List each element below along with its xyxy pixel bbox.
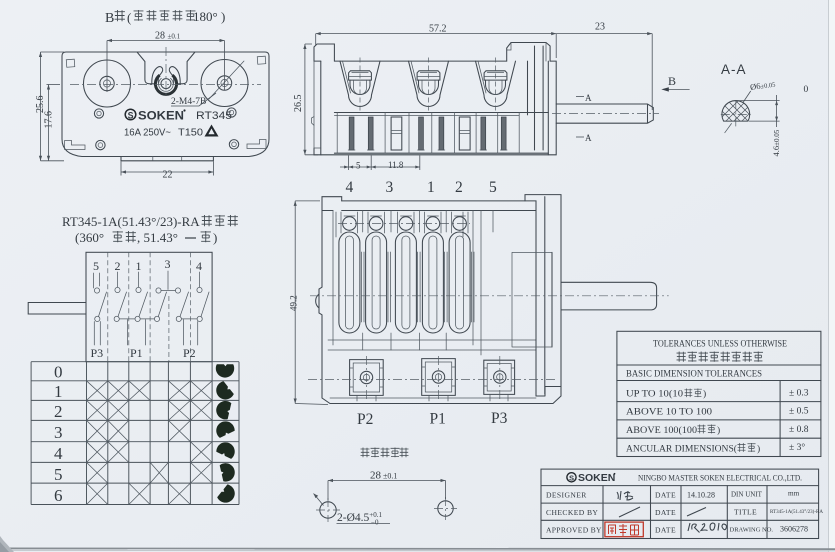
svg-text:P2: P2 [183, 346, 196, 360]
svg-text:3: 3 [54, 423, 63, 442]
svg-text:180° ): 180° ) [193, 9, 225, 24]
svg-text:, 51.43°: , 51.43° [137, 230, 178, 245]
svg-text:): ) [757, 444, 760, 455]
svg-text:± 0.8: ± 0.8 [789, 425, 809, 435]
svg-text:3606278: 3606278 [780, 525, 808, 534]
svg-text:SOKEN: SOKEN [578, 472, 615, 484]
svg-text:57.2: 57.2 [429, 24, 447, 35]
svg-text:A: A [585, 133, 592, 143]
svg-text:23: 23 [595, 22, 605, 33]
svg-text:−0: −0 [371, 519, 379, 527]
svg-text:4: 4 [346, 179, 354, 196]
svg-text:ANCULAR DIMENSIONS(: ANCULAR DIMENSIONS( [626, 444, 737, 455]
svg-text:22: 22 [163, 170, 173, 181]
svg-text:5: 5 [54, 465, 63, 484]
svg-text:4: 4 [54, 444, 63, 463]
svg-text:P3: P3 [91, 346, 104, 360]
svg-text:NINGBO MASTER SOKEN ELECTRICAL: NINGBO MASTER SOKEN ELECTRICAL CO.,LTD. [638, 473, 802, 482]
svg-text:16A 250V~: 16A 250V~ [124, 127, 171, 139]
svg-text:B: B [668, 74, 676, 88]
svg-text:1: 1 [427, 179, 435, 196]
svg-text:4: 4 [196, 259, 202, 273]
svg-text:ABOVE 10 TO 100: ABOVE 10 TO 100 [626, 407, 712, 418]
svg-text:S: S [569, 474, 574, 483]
svg-text:A: A [585, 93, 592, 103]
svg-text:1: 1 [136, 259, 142, 273]
svg-text:T150: T150 [178, 127, 203, 139]
svg-text:5: 5 [93, 259, 99, 273]
svg-text:± 0.3: ± 0.3 [789, 389, 809, 399]
svg-text:2-M4-7B: 2-M4-7B [171, 97, 206, 107]
svg-text:5: 5 [489, 179, 497, 196]
svg-text:): ) [703, 389, 706, 400]
svg-text:APPROVED BY: APPROVED BY [546, 526, 602, 535]
svg-text:28 ±0.1: 28 ±0.1 [370, 470, 397, 482]
svg-text:P3: P3 [491, 410, 508, 427]
svg-text:RT345-1A(51.43°/23)-RA: RT345-1A(51.43°/23)-RA [770, 510, 823, 515]
svg-text:P1: P1 [130, 346, 143, 360]
svg-text:(: ( [127, 10, 131, 25]
svg-text:): ) [213, 230, 217, 245]
svg-text:3: 3 [165, 257, 171, 271]
svg-text:DATE: DATE [655, 508, 676, 517]
svg-text:TITLE: TITLE [734, 508, 757, 517]
svg-text:RT345: RT345 [196, 110, 232, 122]
svg-text:6: 6 [54, 486, 63, 505]
svg-text:11.8: 11.8 [388, 160, 404, 170]
svg-text:S: S [128, 110, 134, 120]
svg-text:2: 2 [455, 179, 463, 196]
svg-text:TOLERANCES UNLESS OTHERWISE: TOLERANCES UNLESS OTHERWISE [653, 339, 787, 350]
svg-text:BASIC DIMENSION TOLERANCES: BASIC DIMENSION TOLERANCES [626, 369, 762, 380]
svg-text:DIN UNIT: DIN UNIT [731, 491, 763, 499]
svg-text:DATE: DATE [655, 491, 676, 500]
svg-text:CHECKED BY: CHECKED BY [546, 508, 598, 517]
svg-text:4.6±0.05: 4.6±0.05 [771, 129, 781, 156]
svg-text:DATE: DATE [655, 526, 676, 535]
svg-text:26.5: 26.5 [293, 95, 304, 113]
svg-text:ABOVE 100(100: ABOVE 100(100 [626, 425, 697, 436]
svg-text:± 3°: ± 3° [789, 442, 805, 453]
svg-text:P1: P1 [430, 411, 446, 428]
svg-text:(360°: (360° [75, 230, 104, 245]
svg-text:DRAWING NO.: DRAWING NO. [730, 527, 774, 534]
svg-text:±0.1: ±0.1 [168, 33, 181, 41]
svg-text:DESIGNER: DESIGNER [546, 491, 587, 500]
svg-text:2: 2 [54, 402, 63, 421]
svg-text:3: 3 [386, 179, 394, 196]
svg-text:± 0.5: ± 0.5 [789, 407, 809, 417]
svg-text:RT345-1A(51.43°/23)-RA: RT345-1A(51.43°/23)-RA [62, 214, 200, 229]
svg-text:1: 1 [54, 382, 63, 401]
svg-text:): ) [717, 425, 720, 436]
svg-text:A-A: A-A [721, 62, 747, 77]
svg-text:SOKEN: SOKEN [138, 108, 184, 122]
svg-text:UP TO 10(10: UP TO 10(10 [626, 389, 683, 400]
svg-text:0: 0 [804, 85, 809, 95]
svg-text:17.6: 17.6 [44, 111, 55, 129]
svg-text:0: 0 [54, 363, 63, 382]
svg-text:5: 5 [356, 161, 361, 171]
svg-text:P2: P2 [357, 411, 373, 428]
svg-text:mm: mm [788, 490, 800, 498]
svg-text:49.2: 49.2 [289, 295, 299, 311]
svg-text:B: B [105, 11, 114, 26]
svg-text:2: 2 [115, 259, 121, 273]
svg-text:28: 28 [155, 31, 165, 42]
svg-text:14.10.28: 14.10.28 [687, 491, 715, 500]
